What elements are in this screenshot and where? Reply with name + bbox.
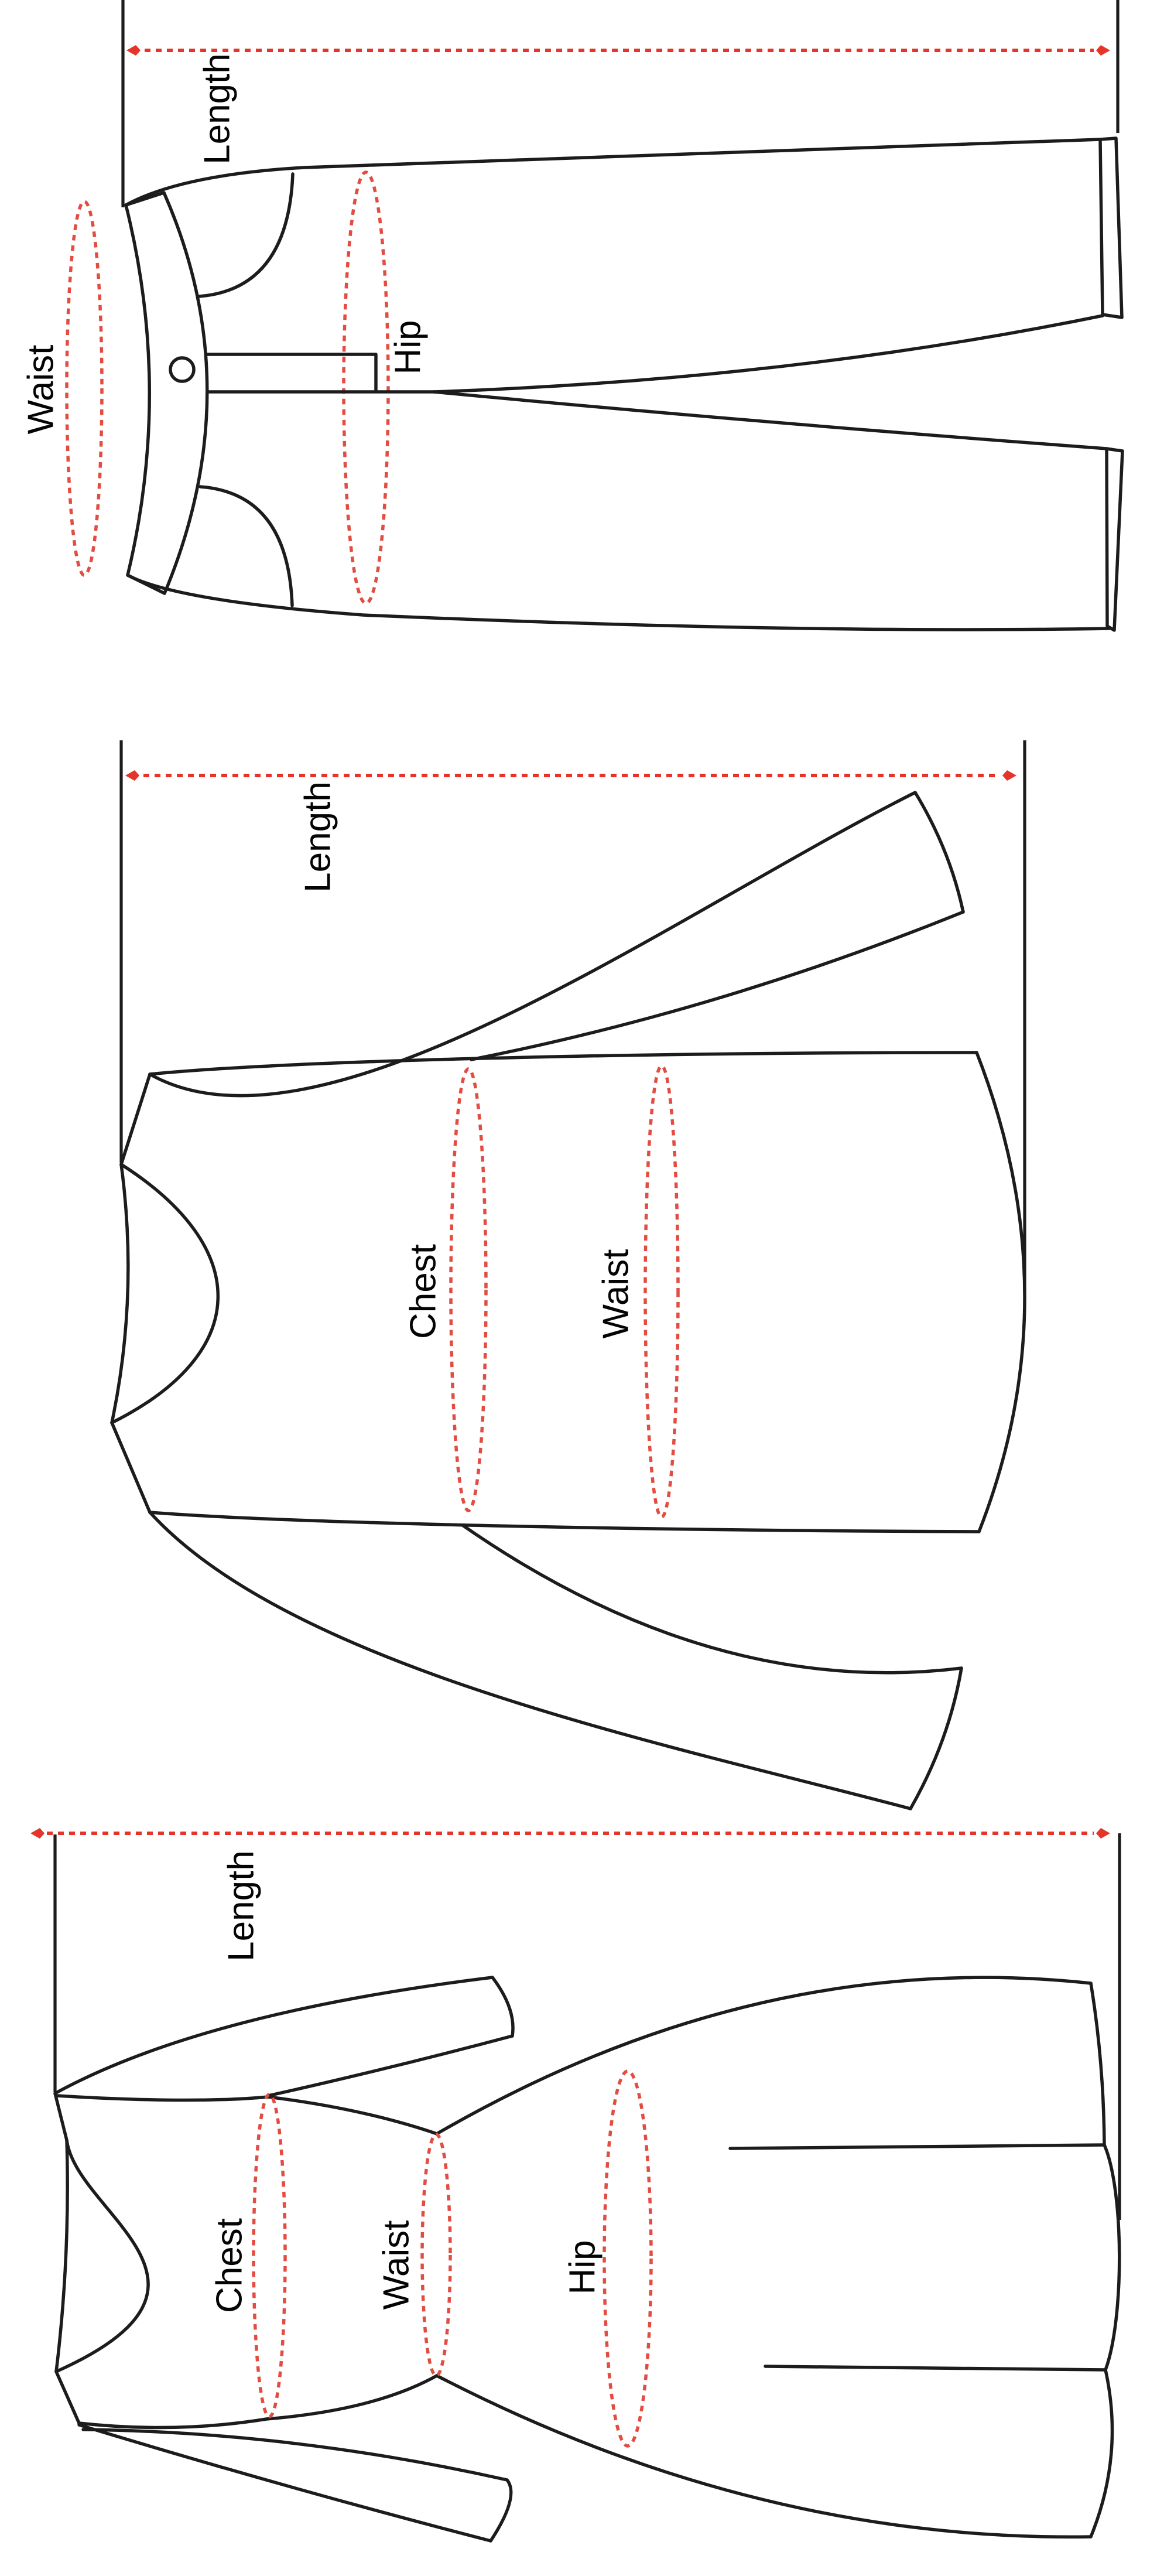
svg-text:Chest: Chest	[403, 1244, 444, 1339]
svg-text:Waist: Waist	[376, 2220, 417, 2310]
svg-text:Length: Length	[197, 53, 238, 165]
svg-text:Waist: Waist	[596, 1249, 636, 1339]
svg-text:Hip: Hip	[563, 2240, 603, 2294]
svg-text:Hip: Hip	[388, 320, 429, 374]
svg-text:Length: Length	[221, 1850, 262, 1962]
svg-text:Waist: Waist	[21, 345, 61, 435]
svg-text:Chest: Chest	[210, 2218, 250, 2313]
svg-text:Length: Length	[298, 781, 338, 893]
